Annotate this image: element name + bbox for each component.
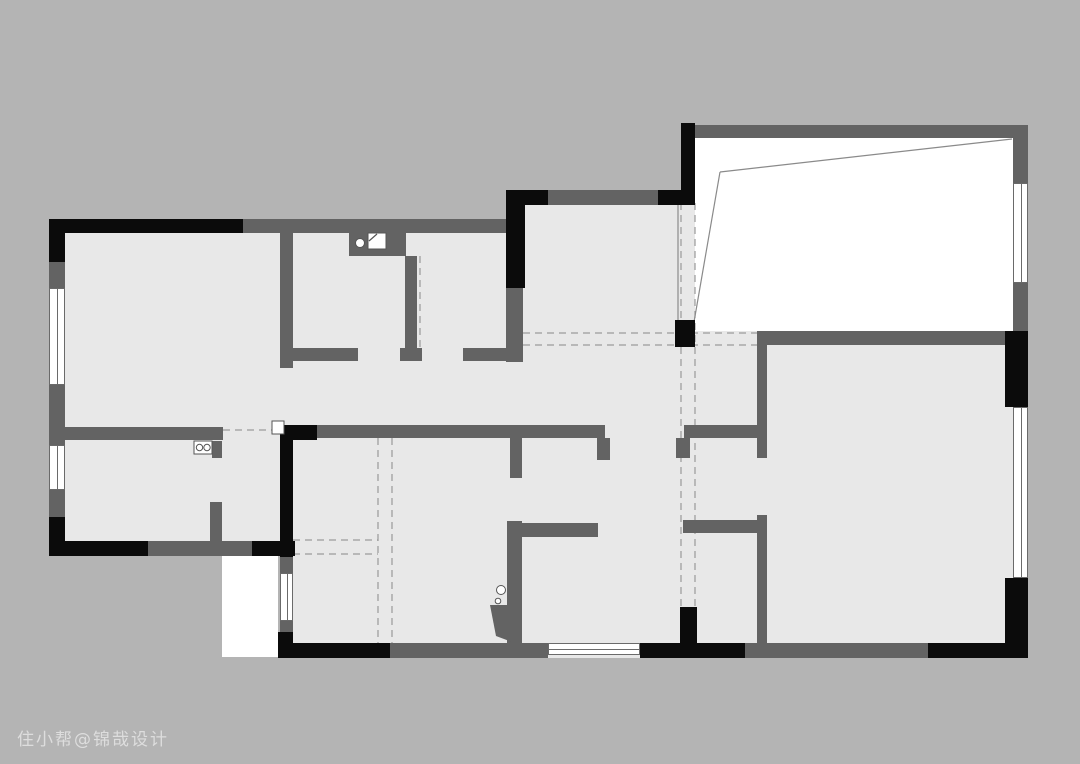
bath-tray-icon (490, 605, 512, 642)
stove-icon (368, 233, 386, 249)
bath-faucet-icon (495, 598, 501, 604)
door-plate-icon (272, 421, 284, 434)
floor-plan-canvas: 住小帮@锦哉设计 (0, 0, 1080, 764)
watermark: 住小帮@锦哉设计 (17, 725, 169, 750)
bath-faucet-icon (497, 586, 506, 595)
sink-icon (356, 239, 365, 248)
fixtures-layer (0, 0, 1080, 764)
